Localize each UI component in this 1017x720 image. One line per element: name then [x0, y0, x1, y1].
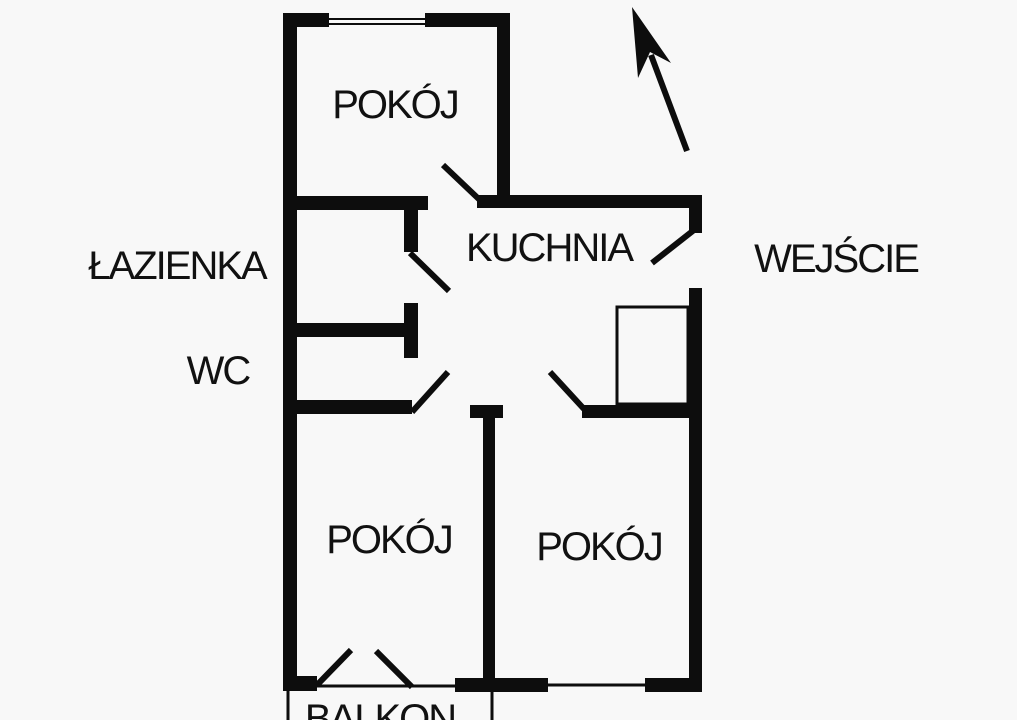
- door-swing-bathroom: [410, 253, 449, 291]
- door-swing-room-left: [412, 372, 448, 412]
- door-swing-room1: [443, 165, 483, 203]
- wall-kitchen-top: [477, 195, 702, 208]
- label-room-right: POKÓJ: [536, 527, 662, 567]
- wall-bottom-right: [645, 678, 702, 692]
- wall-top-left-segment: [283, 13, 329, 27]
- label-wc: WC: [187, 351, 250, 391]
- label-room-left: POKÓJ: [326, 520, 452, 560]
- wall-bottom-middle: [455, 678, 548, 692]
- wall-bathroom-wc-divider: [283, 323, 404, 337]
- door-swing-balcony-left: [317, 650, 351, 685]
- north-arrow-head: [632, 7, 671, 78]
- floor-plan: POKÓJ KUCHNIA ŁAZIENKA WC POKÓJ POKÓJ BA…: [0, 0, 1017, 720]
- closet-outline: [617, 307, 688, 404]
- wall-bathroom-wc-jamb: [404, 303, 418, 358]
- wall-right-outer: [689, 288, 702, 692]
- wall-wc-bottom: [283, 400, 412, 414]
- wall-bathroom-door-jamb: [404, 208, 418, 252]
- north-arrow-shaft: [651, 55, 687, 151]
- wall-bathroom-top: [283, 196, 428, 210]
- label-room-top: POKÓJ: [332, 85, 458, 125]
- label-kitchen: KUCHNIA: [466, 228, 632, 268]
- label-balcony: BALKON: [305, 699, 455, 720]
- wall-hall-room-right: [582, 405, 702, 418]
- wall-middle-divider: [483, 405, 495, 690]
- north-arrow-icon: [632, 7, 687, 151]
- wall-bottom-left-stub: [283, 676, 317, 691]
- wall-entrance-jamb-top: [689, 195, 702, 233]
- floor-plan-drawing: [0, 0, 1017, 720]
- wall-left-outer: [283, 13, 297, 690]
- door-swing-balcony-right: [376, 651, 412, 687]
- door-swing-room-right: [550, 372, 584, 409]
- label-bathroom: ŁAZIENKA: [88, 246, 265, 286]
- label-entrance: WEJŚCIE: [754, 239, 918, 279]
- wall-room1-right: [497, 13, 510, 208]
- door-swing-entrance: [652, 230, 694, 263]
